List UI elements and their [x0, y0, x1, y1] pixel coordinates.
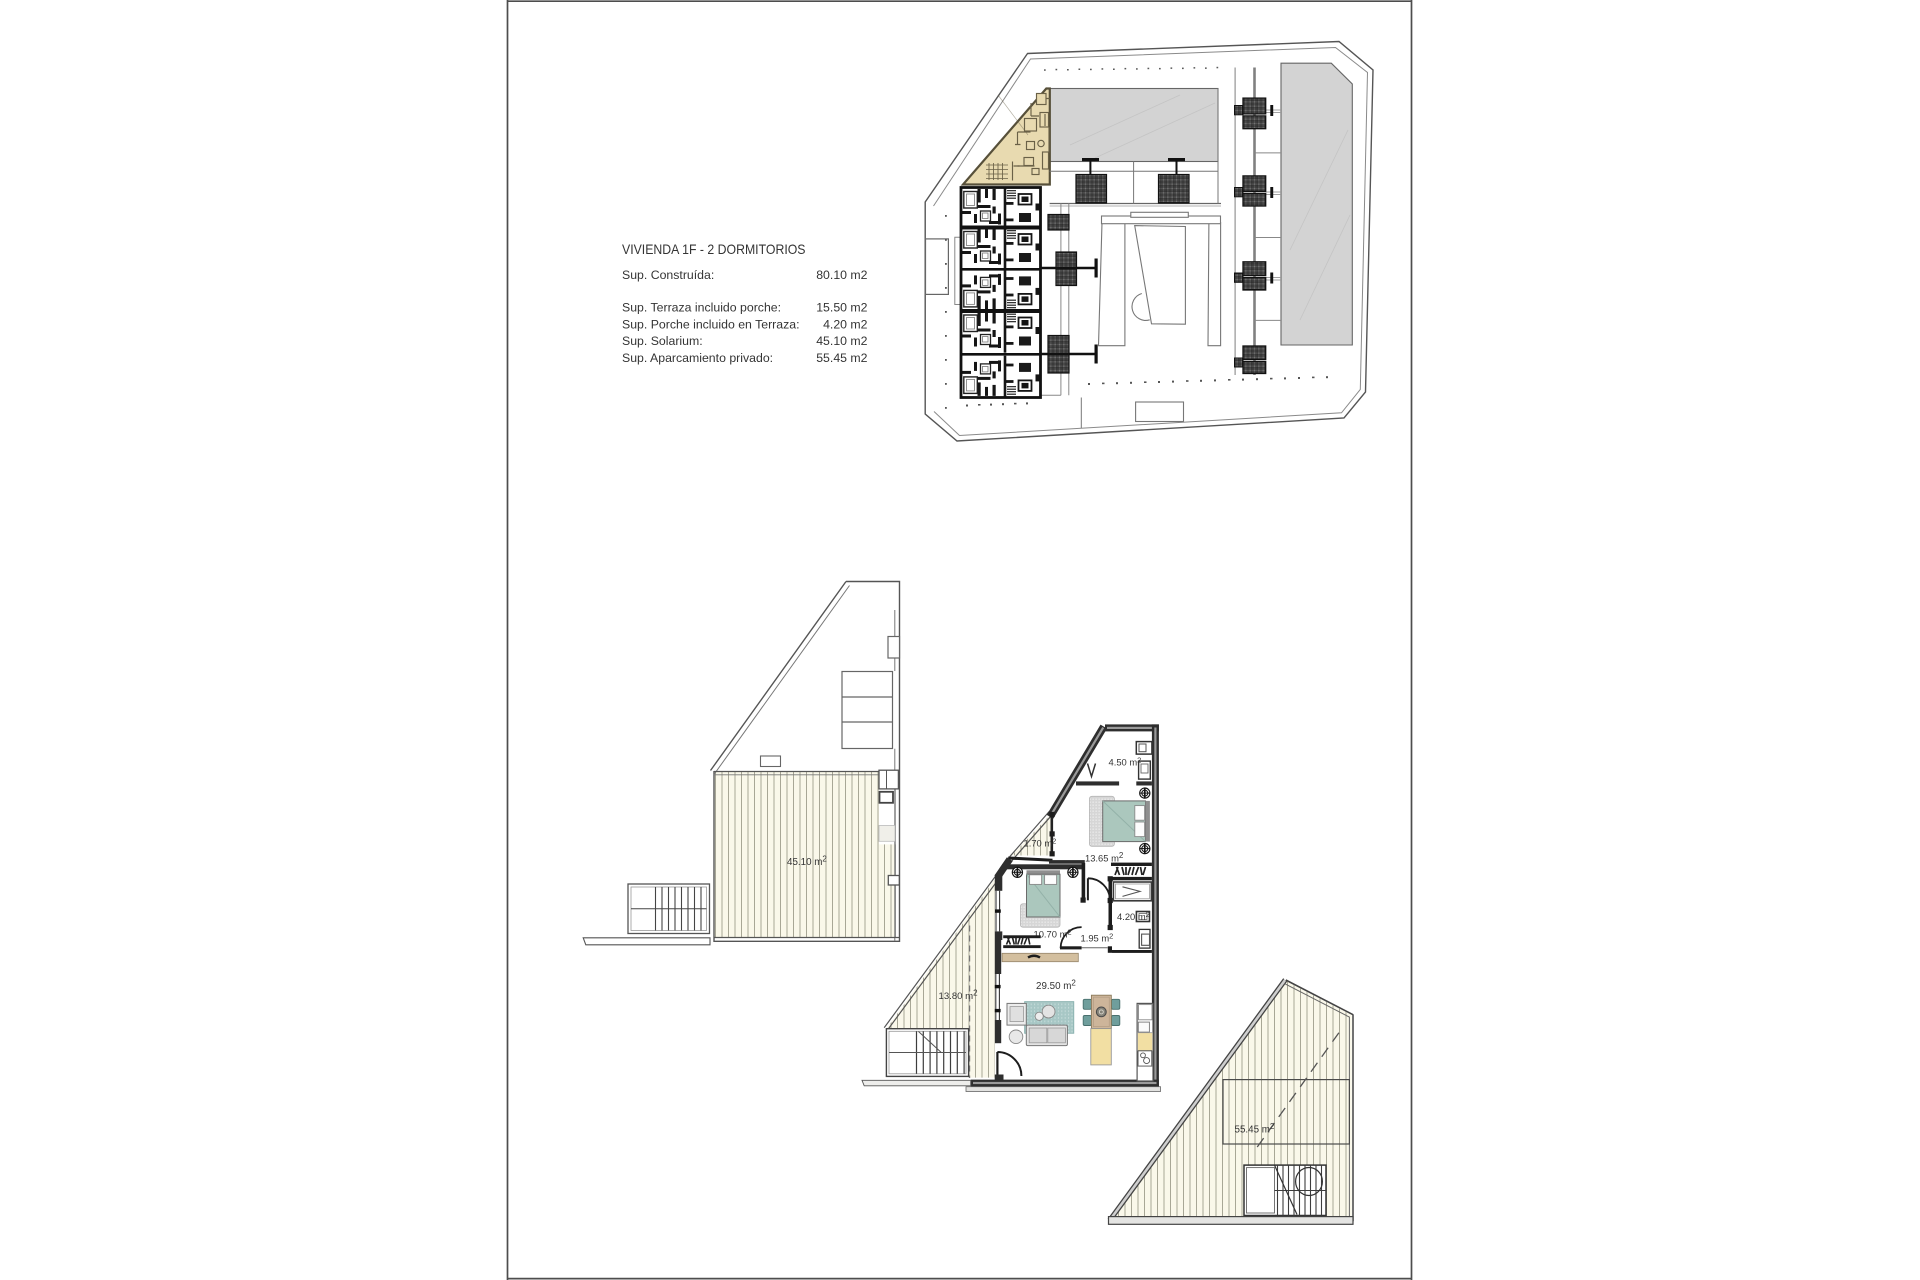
svg-text:13.65 m2: 13.65 m2: [1085, 851, 1124, 864]
svg-text:Sup. Construída:: Sup. Construída:: [622, 268, 714, 282]
svg-text:45.10 m2: 45.10 m2: [816, 334, 867, 348]
svg-text:55.45 m2: 55.45 m2: [816, 351, 867, 365]
svg-text:4.20 m2: 4.20 m2: [1117, 910, 1150, 922]
svg-text:Sup. Solarium:: Sup. Solarium:: [622, 334, 703, 348]
svg-text:13.80 m2: 13.80 m2: [939, 989, 979, 1003]
svg-text:80.10 m2: 80.10 m2: [816, 268, 867, 282]
svg-text:Sup. Porche incluido en Terraz: Sup. Porche incluido en Terraza:: [622, 317, 800, 331]
svg-text:4.20 m2: 4.20 m2: [823, 317, 868, 331]
svg-text:1.70 m2: 1.70 m2: [1024, 836, 1057, 848]
svg-text:15.50 m2: 15.50 m2: [816, 301, 867, 315]
svg-text:4.50 m2: 4.50 m2: [1109, 755, 1142, 767]
svg-text:45.10 m2: 45.10 m2: [787, 855, 827, 869]
svg-text:1.95 m2: 1.95 m2: [1081, 931, 1114, 943]
svg-text:55.45 m2: 55.45 m2: [1235, 1122, 1275, 1136]
svg-text:29.50 m2: 29.50 m2: [1036, 979, 1076, 993]
svg-text:Sup. Aparcamiento privado:: Sup. Aparcamiento privado:: [622, 351, 773, 365]
svg-text:Sup. Terraza incluido porche:: Sup. Terraza incluido porche:: [622, 301, 781, 315]
svg-text:VIVIENDA 1F - 2 DORMITORIOS: VIVIENDA 1F - 2 DORMITORIOS: [622, 241, 806, 257]
